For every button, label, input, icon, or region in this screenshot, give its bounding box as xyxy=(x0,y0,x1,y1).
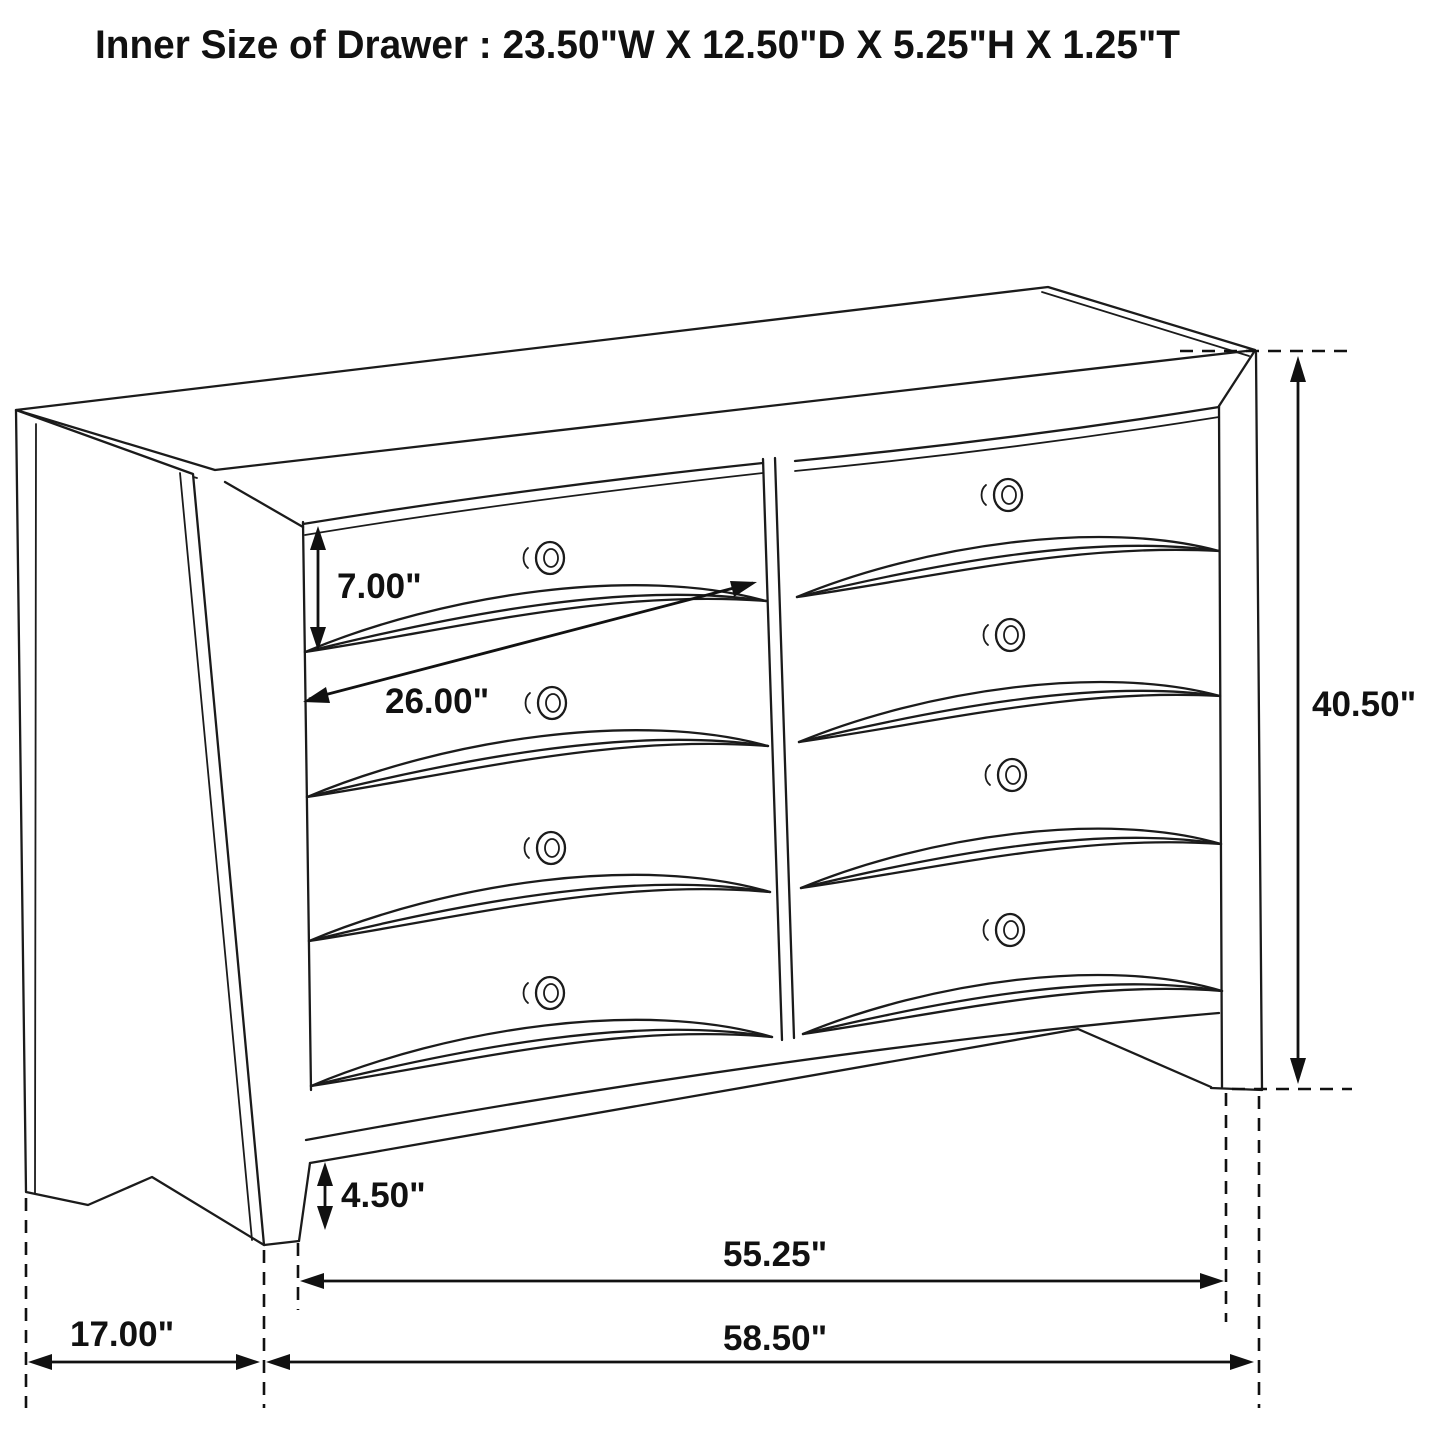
drawer-knob xyxy=(984,619,1024,651)
top-left-bevel xyxy=(225,482,303,527)
left-foot-bottom xyxy=(264,1241,299,1245)
row1-top-right xyxy=(795,407,1219,461)
drawer-knob xyxy=(986,759,1026,791)
drawer-knob xyxy=(526,687,566,719)
overall-width-label: 58.50" xyxy=(723,1319,827,1358)
left-foot-inner-edge xyxy=(299,1163,310,1241)
bottom-rail-top xyxy=(306,1013,1219,1140)
side-panel xyxy=(16,410,264,1245)
dimension-leg-height: 4.50" xyxy=(317,1162,426,1230)
drawer-gaps-right-column xyxy=(797,537,1222,1034)
drawer-knob xyxy=(982,479,1022,511)
overall-height-label: 40.50" xyxy=(1312,685,1416,724)
dresser-top xyxy=(16,287,1255,470)
side-panel-inner-line xyxy=(35,424,36,1193)
row1-top-left xyxy=(303,463,763,524)
drawer-gaps-left-column xyxy=(305,585,772,1086)
center-divider-left-line xyxy=(763,459,782,1040)
diagram-canvas: Inner Size of Drawer : 23.50"W X 12.50"D… xyxy=(0,0,1445,1445)
page-title: Inner Size of Drawer : 23.50"W X 12.50"D… xyxy=(95,23,1180,67)
depth-label: 17.00" xyxy=(70,1315,174,1354)
drawer-knob xyxy=(984,914,1024,946)
center-divider-right-line xyxy=(775,458,794,1038)
right-foot-cutout xyxy=(1078,1029,1211,1087)
drawer-area-left-edge xyxy=(303,522,311,1090)
leg-height-label: 4.50" xyxy=(341,1176,426,1215)
front-right-outer-edge xyxy=(1256,353,1262,1090)
dimension-depth: 17.00" xyxy=(26,1198,260,1408)
drawer-width-label: 26.00" xyxy=(385,682,489,721)
dresser-drawing xyxy=(16,287,1262,1245)
drawer-knob xyxy=(525,832,565,864)
drawer-knob xyxy=(524,542,564,574)
feet-span-label: 55.25" xyxy=(723,1235,827,1274)
dimension-feet-span: 55.25" xyxy=(298,1093,1226,1322)
top-right-bevel xyxy=(1219,352,1254,406)
row1-top-right-band xyxy=(795,417,1219,471)
drawer-height-label: 7.00" xyxy=(337,567,422,606)
drawer-area-right-edge xyxy=(1219,406,1222,1087)
dimension-drawer-height: 7.00" xyxy=(310,526,422,651)
dresser-dimension-diagram: Inner Size of Drawer : 23.50"W X 12.50"D… xyxy=(0,0,1445,1445)
dimension-overall-height: 40.50" xyxy=(1180,351,1416,1089)
drawer-knob xyxy=(524,977,564,1009)
row1-top-left-band xyxy=(305,473,763,535)
